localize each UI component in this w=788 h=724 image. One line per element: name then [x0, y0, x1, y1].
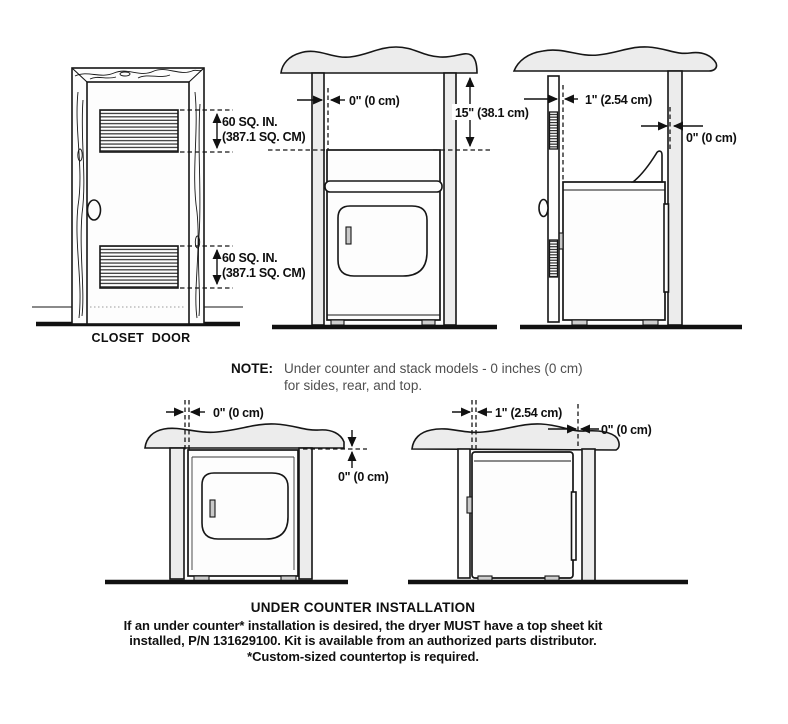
dryer-cabinet-side	[472, 452, 573, 578]
note-body: Under counter and stack models - 0 inche…	[284, 360, 583, 394]
rear-panel-strip	[572, 492, 577, 560]
note-label: NOTE:	[231, 360, 273, 394]
ceiling-shelf	[281, 47, 477, 73]
note-line1: Under counter and stack models - 0 inche…	[284, 361, 583, 376]
dryer-door-handle	[210, 500, 215, 517]
closet-door-front-diagram: 60 SQ. IN. (387.1 SQ. CM) 60 SQ. IN. (38…	[32, 68, 305, 345]
top-vent-side	[550, 112, 558, 149]
installation-manual-page: { "colors": { "ink": "#161616", "panel_g…	[0, 0, 788, 724]
left-wall	[312, 73, 324, 325]
rear-panel-strip	[664, 204, 669, 292]
top-clearance-label: 15" (38.1 cm)	[455, 106, 529, 120]
under-counter-front-diagram: 0" (0 cm) 0" (0 cm)	[105, 400, 389, 582]
bottom-vent-area-label-line2: (387.1 SQ. CM)	[222, 266, 305, 280]
top-louver-vent	[100, 110, 178, 152]
dryer-cabinet	[188, 450, 298, 576]
alcove-front-diagram: 0" (0 cm) 15" (38.1 cm)	[268, 47, 536, 327]
top-vent-area-label-line2: (387.1 SQ. CM)	[222, 130, 305, 144]
dryer-top-edge-band	[325, 181, 442, 192]
dryer-foot	[643, 320, 658, 325]
door-clearance-label: 1" (2.54 cm)	[495, 406, 562, 420]
footer-line2: installed, P/N 131629100. Kit is availab…	[102, 633, 624, 649]
top-vent-area-label-line1: 60 SQ. IN.	[222, 115, 277, 129]
note-line2: for sides, rear, and top.	[284, 378, 422, 393]
left-wall	[170, 448, 184, 579]
bottom-louver-vent	[100, 246, 178, 288]
dryer-foot	[331, 320, 344, 325]
dryer-foot	[572, 320, 587, 325]
countertop	[145, 424, 344, 448]
door-knob	[88, 200, 101, 220]
console-profile	[633, 151, 662, 182]
rear-clearance-label: 0" (0 cm)	[601, 423, 652, 437]
dryer-door-handle	[346, 227, 351, 244]
door-clearance-label: 1" (2.54 cm)	[585, 93, 652, 107]
top-clearance-label: 0" (0 cm)	[338, 470, 389, 484]
under-counter-side-diagram: 1" (2.54 cm) 0" (0 cm)	[408, 400, 688, 582]
door-knob-side	[539, 200, 548, 217]
rear-wall	[582, 449, 595, 581]
closet-side-diagram: 1" (2.54 cm) 0" (0 cm)	[514, 47, 742, 327]
under-counter-installation-text: UNDER COUNTER INSTALLATION If an under c…	[102, 600, 624, 664]
side-clearance-label: 0" (0 cm)	[349, 94, 400, 108]
bottom-vent-area-label-line1: 60 SQ. IN.	[222, 251, 277, 265]
footer-title: UNDER COUNTER INSTALLATION	[102, 600, 624, 616]
dryer-door-handle	[467, 497, 472, 513]
rear-clearance-label: 0" (0 cm)	[686, 131, 737, 145]
dryer-foot	[422, 320, 435, 325]
dryer-cabinet-side	[563, 182, 665, 320]
closet-door-caption: CLOSET DOOR	[92, 331, 191, 345]
note-block: NOTE: Under counter and stack models - 0…	[231, 360, 583, 394]
footer-line3: *Custom-sized countertop is required.	[102, 649, 624, 665]
bottom-vent-side	[550, 240, 558, 277]
countertop	[412, 424, 619, 450]
side-clearance-label: 0" (0 cm)	[213, 406, 264, 420]
right-wall	[299, 448, 312, 579]
footer-line1: If an under counter* installation is des…	[102, 618, 624, 634]
ceiling-shelf	[514, 47, 717, 71]
dryer-cabinet	[327, 150, 440, 320]
